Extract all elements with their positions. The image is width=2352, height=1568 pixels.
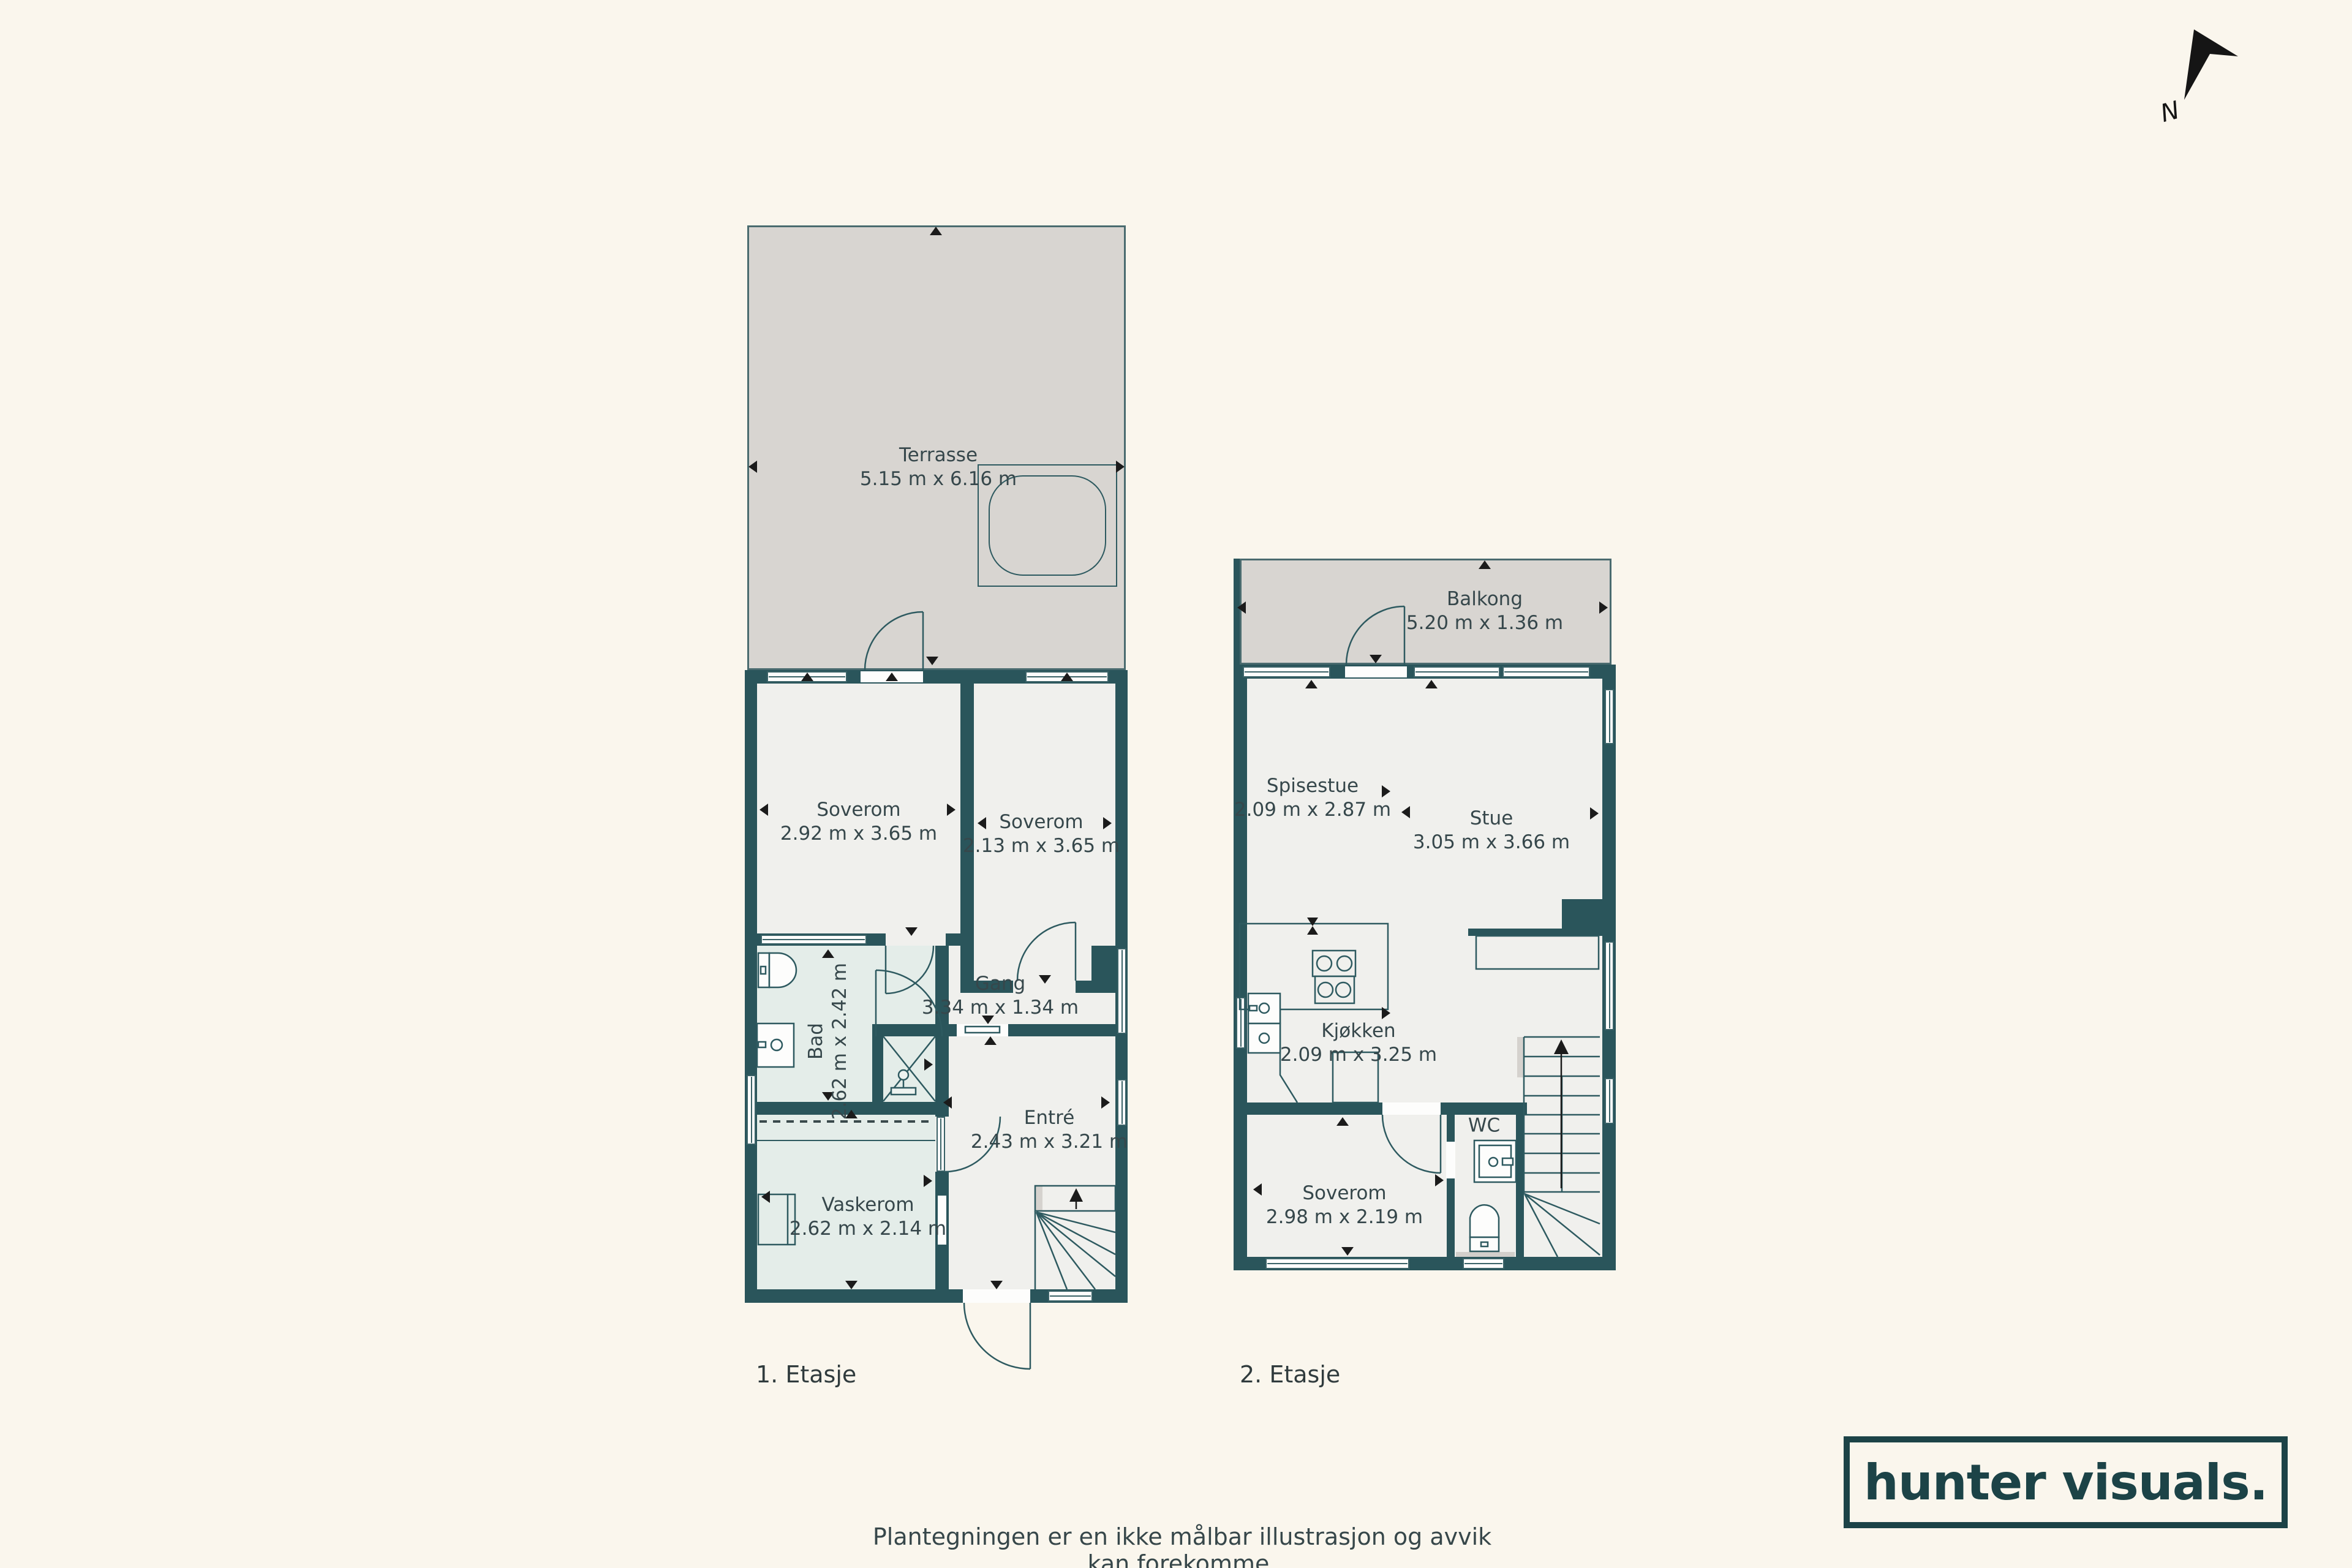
floor-plan-canvas: Terrasse 5.15 m x 6.16 m Soverom 2.92 m …	[0, 0, 2352, 1568]
logo-text: hunter visuals.	[1864, 1454, 2267, 1511]
plan-line-art	[0, 0, 2352, 1568]
measure-arrow-left	[1253, 1183, 1262, 1196]
hunter-visuals-logo: hunter visuals.	[1844, 1436, 2288, 1528]
window	[1236, 997, 1245, 1049]
measure-arrow-right	[947, 804, 956, 816]
room-name: Entré	[971, 1106, 1128, 1130]
north-arrow-icon	[2184, 29, 2238, 100]
room-name: Stue	[1413, 807, 1570, 831]
measure-arrow-right	[1590, 807, 1599, 820]
room-name: Vaskerom	[790, 1193, 946, 1217]
measure-arrow-up	[1061, 673, 1073, 681]
entry-door-opening	[963, 1289, 1030, 1303]
room-dims: 2.43 m x 3.21 m	[971, 1130, 1128, 1154]
measure-arrow-down	[845, 1281, 858, 1289]
room-label-terrasse: Terrasse 5.15 m x 6.16 m	[860, 443, 1017, 491]
laundry-door-leaf	[937, 1117, 945, 1172]
room-dims: 5.15 m x 6.16 m	[860, 467, 1017, 491]
room-name: Kjøkken	[1280, 1019, 1437, 1043]
wall	[1447, 1115, 1455, 1257]
measure-arrow-down	[926, 657, 938, 665]
wall	[1516, 1115, 1524, 1257]
room-dims: 2.98 m x 2.19 m	[1266, 1205, 1423, 1229]
room-label-soverom-b: Soverom 2.13 m x 3.65 m	[963, 810, 1120, 858]
room-dims: 3.34 m x 1.34 m	[922, 996, 1079, 1020]
window	[1463, 1258, 1504, 1269]
north-label: N	[2158, 96, 2183, 128]
window	[747, 1075, 756, 1145]
door-arc	[964, 1303, 1030, 1369]
room-dims: 2.09 m x 3.25 m	[1280, 1043, 1437, 1067]
room-dims: 2.62 m x 2.42 m	[828, 963, 852, 1120]
stair-first-step	[1517, 1037, 1524, 1077]
measure-arrow-right	[1435, 1174, 1444, 1186]
wall	[1234, 665, 1247, 1270]
measure-arrow-left	[1237, 601, 1246, 614]
wall	[1441, 1102, 1527, 1115]
balcony-door-opening	[1345, 666, 1407, 677]
measure-arrow-up	[886, 673, 898, 681]
measure-arrow-left	[943, 1096, 952, 1109]
room-dims: 2.09 m x 2.87 m	[1234, 798, 1391, 822]
wall	[872, 1036, 883, 1102]
wc-door-opening	[1446, 1142, 1455, 1178]
room-label-stue: Stue 3.05 m x 3.66 m	[1413, 807, 1570, 854]
measure-arrow-up	[1336, 1117, 1349, 1126]
room-label-wc: WC	[1468, 1114, 1500, 1138]
measure-arrow-up	[1425, 680, 1438, 688]
wall	[946, 933, 960, 946]
room-label-balkong: Balkong 5.20 m x 1.36 m	[1406, 587, 1563, 635]
measure-arrow-down	[1341, 1247, 1354, 1256]
measure-arrow-down	[905, 927, 918, 936]
room-name: Soverom	[963, 810, 1120, 834]
room-label-entre: Entré 2.43 m x 3.21 m	[971, 1106, 1128, 1154]
room-label-soverom-a: Soverom 2.92 m x 3.65 m	[780, 798, 937, 846]
wall	[1091, 946, 1115, 981]
floor2-label: 2. Etasje	[1240, 1361, 1340, 1388]
measure-arrow-up	[822, 949, 834, 958]
window	[1605, 941, 1614, 1030]
window	[1048, 1291, 1093, 1302]
room-name: Terrasse	[860, 443, 1017, 467]
chimney-block	[1562, 899, 1602, 929]
measure-arrow-up	[930, 227, 942, 235]
room-name: Soverom	[1266, 1182, 1423, 1205]
bedroom-door-opening	[1382, 1102, 1441, 1115]
measure-arrow-up	[984, 1036, 997, 1045]
measure-arrow-down	[1370, 655, 1382, 663]
wall	[745, 670, 757, 1303]
measure-arrow-down	[990, 1281, 1003, 1289]
measure-arrow-right	[1382, 1007, 1390, 1019]
room-label-kjokken: Kjøkken 2.09 m x 3.25 m	[1280, 1019, 1437, 1067]
window	[1605, 1078, 1614, 1124]
measure-arrow-left	[761, 1191, 770, 1203]
half-wall	[1468, 929, 1602, 936]
measure-arrow-right	[1599, 601, 1608, 614]
measure-arrow-right	[924, 1058, 933, 1071]
room-dims: 2.92 m x 3.65 m	[780, 822, 937, 846]
measure-arrow-left	[759, 804, 768, 816]
room-dims: 3.05 m x 3.66 m	[1413, 831, 1570, 854]
room-label-bad: Bad 2.62 m x 2.42 m	[804, 963, 852, 1120]
room-label-vaskerom: Vaskerom 2.62 m x 2.14 m	[790, 1193, 946, 1241]
floor2-interior	[1247, 679, 1602, 1257]
room-name: WC	[1468, 1114, 1500, 1138]
window	[1414, 666, 1500, 677]
stair-first-step	[1035, 1186, 1042, 1211]
room-label-gang: Gang 3.34 m x 1.34 m	[922, 972, 1079, 1020]
room-name: Balkong	[1406, 587, 1563, 611]
room-dims: 2.13 m x 3.65 m	[963, 834, 1120, 858]
room-name: Spisestue	[1234, 774, 1391, 798]
room-name: Gang	[922, 972, 1079, 996]
wall	[1234, 1102, 1382, 1115]
cased-opening	[957, 1024, 1008, 1036]
room-name: Soverom	[780, 798, 937, 822]
room-label-soverom2: Soverom 2.98 m x 2.19 m	[1266, 1182, 1423, 1229]
window	[1117, 948, 1126, 1034]
wardrobe-band	[761, 935, 867, 944]
measure-arrow-left	[748, 461, 757, 473]
measure-arrow-right	[924, 1175, 932, 1187]
measure-arrow-right	[1116, 461, 1125, 473]
window	[1265, 1258, 1409, 1269]
wall	[1076, 981, 1115, 993]
floor1-label: 1. Etasje	[756, 1361, 856, 1388]
measure-arrow-up	[1479, 560, 1491, 569]
measure-arrow-up	[1305, 680, 1317, 688]
room-label-spisestue: Spisestue 2.09 m x 2.87 m	[1234, 774, 1391, 822]
room-dims: 5.20 m x 1.36 m	[1406, 611, 1563, 635]
room-name: Bad	[804, 963, 828, 1120]
window	[1243, 666, 1330, 677]
measure-arrow-left	[1401, 806, 1410, 818]
window	[1605, 689, 1614, 744]
disclaimer-text: Plantegningen er en ikke målbar illustra…	[858, 1523, 1507, 1568]
window	[1502, 666, 1590, 677]
room-dims: 2.62 m x 2.14 m	[790, 1217, 946, 1241]
measure-arrow-up	[801, 673, 813, 681]
